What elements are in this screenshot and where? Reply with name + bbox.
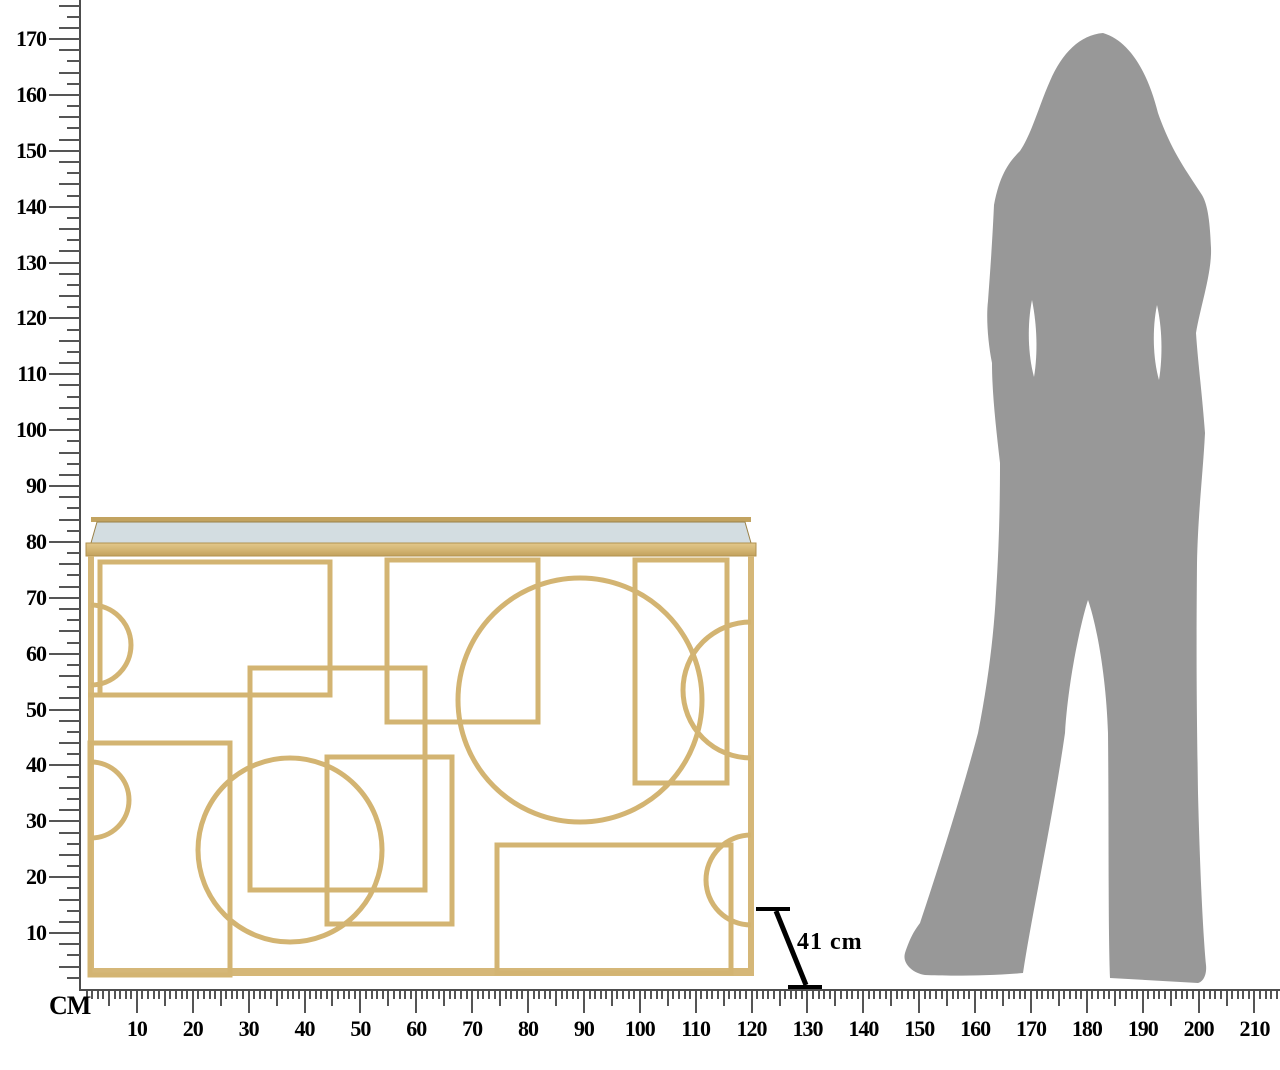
ruler-tick xyxy=(97,991,99,999)
ruler-tick xyxy=(248,991,250,1013)
ruler-tick xyxy=(1063,991,1065,999)
ruler-tick xyxy=(67,977,80,979)
ruler-unit-label: CM xyxy=(49,991,90,1021)
ruler-label: 40 xyxy=(277,1017,333,1041)
ruler-tick xyxy=(846,991,848,999)
ruler-tick xyxy=(946,991,948,1006)
ruler-tick xyxy=(449,991,451,999)
ruler-tick xyxy=(125,991,127,999)
ruler-tick xyxy=(711,991,713,999)
ruler-tick xyxy=(169,991,171,999)
ruler-tick xyxy=(812,991,814,999)
ruler-tick xyxy=(49,206,80,208)
silhouette-shape xyxy=(904,33,1211,983)
ruler-tick xyxy=(214,991,216,999)
ruler-tick xyxy=(918,991,920,1013)
ruler-tick xyxy=(59,295,80,297)
ruler-tick xyxy=(67,440,80,442)
ruler-tick xyxy=(1019,991,1021,999)
ruler-tick xyxy=(67,731,80,733)
ruler-tick xyxy=(1114,991,1116,1006)
ruler-label: 10 xyxy=(109,1017,165,1041)
ruler-tick xyxy=(885,991,887,999)
ruler-tick xyxy=(67,552,80,554)
ruler-tick xyxy=(236,991,238,999)
ruler-tick xyxy=(371,991,373,999)
ruler-label: 60 xyxy=(0,643,46,665)
ruler-tick xyxy=(901,991,903,999)
ruler-tick xyxy=(91,991,93,999)
ruler-tick xyxy=(197,991,199,999)
ruler-tick xyxy=(477,991,479,999)
ruler-tick xyxy=(59,340,80,342)
ruler-tick xyxy=(890,991,892,1006)
ruler-tick xyxy=(1270,991,1272,999)
ruler-tick xyxy=(1136,991,1138,999)
ruler-tick xyxy=(67,843,80,845)
ruler-tick xyxy=(225,991,227,999)
ruler-tick xyxy=(818,991,820,999)
ruler-label: 140 xyxy=(835,1017,891,1041)
ruler-tick xyxy=(67,105,80,107)
ruler-tick xyxy=(980,991,982,999)
ruler-tick xyxy=(1242,991,1244,999)
ruler-tick xyxy=(59,139,80,141)
ruler-tick xyxy=(231,991,233,999)
ruler-tick xyxy=(331,991,333,1006)
ruler-label: 150 xyxy=(891,1017,947,1041)
ruler-tick xyxy=(1203,991,1205,999)
ruler-tick xyxy=(661,991,663,999)
ruler-tick xyxy=(695,991,697,1013)
ruler-tick xyxy=(49,764,80,766)
ruler-label: 30 xyxy=(0,810,46,832)
ruler-tick xyxy=(393,991,395,999)
ruler-tick xyxy=(1147,991,1149,999)
ruler-tick xyxy=(59,27,80,29)
ruler-tick xyxy=(164,991,166,1006)
ruler-tick xyxy=(119,991,121,999)
ruler-tick xyxy=(583,991,585,1013)
ruler-tick xyxy=(404,991,406,999)
ruler-tick xyxy=(49,150,80,152)
ruler-tick xyxy=(1002,991,1004,1006)
ruler-tick xyxy=(1237,991,1239,999)
ruler-tick xyxy=(790,991,792,999)
tabletop xyxy=(86,517,756,556)
ruler-tick xyxy=(59,49,80,51)
ruler-tick xyxy=(996,991,998,999)
ruler-tick xyxy=(1036,991,1038,999)
ruler-tick xyxy=(538,991,540,999)
ruler-tick xyxy=(762,991,764,999)
ruler-label: 170 xyxy=(1003,1017,1059,1041)
ruler-tick xyxy=(1119,991,1121,999)
ruler-tick xyxy=(59,563,80,565)
ruler-tick xyxy=(1024,991,1026,999)
ruler-tick xyxy=(270,991,272,999)
ruler-tick xyxy=(298,991,300,999)
ruler-tick xyxy=(868,991,870,999)
ruler-label: 10 xyxy=(0,922,46,944)
ruler-tick xyxy=(315,991,317,999)
ruler-tick xyxy=(67,798,80,800)
ruler-tick xyxy=(639,991,641,1013)
ruler-tick xyxy=(59,161,80,163)
ruler-tick xyxy=(628,991,630,999)
ruler-tick xyxy=(49,541,80,543)
ruler-tick xyxy=(549,991,551,999)
ruler-tick xyxy=(59,608,80,610)
ruler-tick xyxy=(67,530,80,532)
ruler-tick xyxy=(59,452,80,454)
ruler-tick xyxy=(566,991,568,999)
ruler-tick xyxy=(304,991,306,1013)
ruler-tick xyxy=(1069,991,1071,999)
ruler-tick xyxy=(991,991,993,999)
ruler-tick xyxy=(343,991,345,999)
ruler-tick xyxy=(354,991,356,999)
ruler-tick xyxy=(717,991,719,999)
ruler-tick xyxy=(49,317,80,319)
ruler-label: 200 xyxy=(1171,1017,1227,1041)
vertical-ruler-line xyxy=(79,0,81,990)
ruler-tick xyxy=(572,991,574,999)
ruler-tick xyxy=(706,991,708,999)
ruler-tick xyxy=(510,991,512,999)
ruler-label: 50 xyxy=(0,699,46,721)
ruler-tick xyxy=(924,991,926,999)
ruler-tick xyxy=(1276,991,1278,999)
ruler-tick xyxy=(67,686,80,688)
ruler-tick xyxy=(466,991,468,999)
ruler-tick xyxy=(67,418,80,420)
ruler-tick xyxy=(1181,991,1183,999)
ruler-tick xyxy=(359,991,361,1013)
ruler-tick xyxy=(102,991,104,999)
ruler-tick xyxy=(49,597,80,599)
large-circle xyxy=(458,578,702,822)
ruler-tick xyxy=(957,991,959,999)
ruler-tick xyxy=(1220,991,1222,999)
ruler-tick xyxy=(862,991,864,1013)
ruler-tick xyxy=(49,653,80,655)
ruler-tick xyxy=(67,60,80,62)
ruler-tick xyxy=(281,991,283,999)
ruler-tick xyxy=(320,991,322,999)
ruler-tick xyxy=(59,742,80,744)
ruler-tick xyxy=(253,991,255,999)
ruler-tick xyxy=(175,991,177,999)
ruler-tick xyxy=(974,991,976,1013)
ruler-tick xyxy=(220,991,222,1006)
ruler-label: 80 xyxy=(500,1017,556,1041)
ruler-tick xyxy=(1164,991,1166,999)
ruler-label: 20 xyxy=(0,866,46,888)
ruler-tick xyxy=(739,991,741,999)
ruler-tick xyxy=(633,991,635,999)
ruler-tick xyxy=(114,991,116,999)
ruler-tick xyxy=(460,991,462,999)
ruler-label: 70 xyxy=(0,587,46,609)
ruler-tick xyxy=(1080,991,1082,999)
ruler-tick xyxy=(505,991,507,999)
ruler-tick xyxy=(1209,991,1211,999)
ruler-tick xyxy=(1030,991,1032,1013)
ruler-tick xyxy=(67,351,80,353)
ruler-tick xyxy=(59,5,80,7)
ruler-tick xyxy=(67,127,80,129)
ruler-tick xyxy=(59,966,80,968)
ruler-tick xyxy=(59,407,80,409)
ruler-label: 90 xyxy=(0,475,46,497)
ruler-tick xyxy=(309,991,311,999)
ruler-tick xyxy=(67,306,80,308)
ruler-tick xyxy=(896,991,898,999)
ruler-tick xyxy=(823,991,825,999)
ruler-tick xyxy=(857,991,859,999)
ruler-tick xyxy=(482,991,484,999)
ruler-tick xyxy=(600,991,602,999)
mirror-top xyxy=(91,522,751,543)
ruler-tick xyxy=(784,991,786,999)
ruler-tick xyxy=(49,485,80,487)
ruler-tick xyxy=(1108,991,1110,999)
ruler-tick xyxy=(521,991,523,999)
ruler-tick xyxy=(1142,991,1144,1013)
ruler-tick xyxy=(67,195,80,197)
small-circle xyxy=(198,758,382,942)
ruler-tick xyxy=(67,396,80,398)
ruler-tick xyxy=(1226,991,1228,1006)
ruler-tick xyxy=(49,932,80,934)
ruler-tick xyxy=(59,921,80,923)
ruler-tick xyxy=(1091,991,1093,999)
ruler-tick xyxy=(734,991,736,999)
ruler-tick xyxy=(1259,991,1261,999)
ruler-label: 80 xyxy=(0,531,46,553)
ruler-tick xyxy=(67,83,80,85)
ruler-tick xyxy=(879,991,881,999)
ruler-tick xyxy=(49,262,80,264)
ruler-tick xyxy=(438,991,440,999)
ruler-tick xyxy=(728,991,730,999)
ruler-tick xyxy=(59,362,80,364)
ruler-tick xyxy=(929,991,931,999)
ruler-tick xyxy=(672,991,674,999)
ruler-tick xyxy=(1248,991,1250,999)
ruler-tick xyxy=(181,991,183,999)
ruler-tick xyxy=(59,183,80,185)
ruler-label: 40 xyxy=(0,754,46,776)
ruler-tick xyxy=(840,991,842,999)
ruler-tick xyxy=(1265,991,1267,999)
ruler-tick xyxy=(59,854,80,856)
ruler-tick xyxy=(773,991,775,999)
ruler-tick xyxy=(907,991,909,999)
ruler-tick xyxy=(59,809,80,811)
geometric-frame xyxy=(88,560,751,975)
ruler-tick xyxy=(337,991,339,999)
ruler-label: 180 xyxy=(1059,1017,1115,1041)
ruler-tick xyxy=(723,991,725,1006)
ruler-tick xyxy=(1231,991,1233,999)
ruler-tick xyxy=(471,991,473,1013)
ruler-tick xyxy=(67,619,80,621)
ruler-label: 140 xyxy=(0,196,46,218)
ruler-tick xyxy=(67,239,80,241)
ruler-tick xyxy=(67,507,80,509)
ruler-tick xyxy=(136,991,138,1013)
ruler-tick xyxy=(700,991,702,999)
ruler-tick xyxy=(59,630,80,632)
ruler-tick xyxy=(1175,991,1177,999)
ruler-tick xyxy=(292,991,294,999)
ruler-tick xyxy=(59,943,80,945)
ruler-tick xyxy=(242,991,244,999)
ruler-tick xyxy=(577,991,579,999)
ruler-tick xyxy=(1058,991,1060,1006)
ruler-tick xyxy=(1041,991,1043,999)
dimension-diagram: 1020304050607080901001101201301401501601… xyxy=(0,0,1280,1070)
ruler-tick xyxy=(67,642,80,644)
ruler-label: 110 xyxy=(0,363,46,385)
ruler-tick xyxy=(1198,991,1200,1013)
ruler-tick xyxy=(1131,991,1133,999)
ruler-tick xyxy=(935,991,937,999)
ruler-tick xyxy=(365,991,367,999)
ruler-tick xyxy=(644,991,646,999)
ruler-tick xyxy=(203,991,205,999)
ruler-tick xyxy=(454,991,456,999)
ruler-tick xyxy=(108,991,110,1006)
ruler-tick xyxy=(1097,991,1099,999)
ruler-label: 120 xyxy=(0,307,46,329)
ruler-label: 210 xyxy=(1226,1017,1280,1041)
ruler-label: 70 xyxy=(444,1017,500,1041)
ruler-tick xyxy=(1192,991,1194,999)
ruler-tick xyxy=(153,991,155,999)
ruler-tick xyxy=(59,675,80,677)
ruler-label: 50 xyxy=(332,1017,388,1041)
ruler-tick xyxy=(745,991,747,999)
ruler-tick xyxy=(67,887,80,889)
ruler-label: 130 xyxy=(0,252,46,274)
ruler-tick xyxy=(1052,991,1054,999)
ruler-tick xyxy=(130,991,132,999)
ruler-tick xyxy=(684,991,686,999)
ruler-tick xyxy=(382,991,384,999)
ruler-label: 30 xyxy=(221,1017,277,1041)
ruler-tick xyxy=(399,991,401,999)
ruler-tick xyxy=(67,284,80,286)
ruler-tick xyxy=(756,991,758,999)
ruler-tick xyxy=(141,991,143,999)
ruler-tick xyxy=(67,329,80,331)
ruler-tick xyxy=(1253,991,1255,1013)
ruler-tick xyxy=(1008,991,1010,999)
ruler-label: 170 xyxy=(0,28,46,50)
ruler-tick xyxy=(59,72,80,74)
ruler-tick xyxy=(415,991,417,1013)
ruler-label: 110 xyxy=(668,1017,724,1041)
ruler-tick xyxy=(67,172,80,174)
ruler-tick xyxy=(952,991,954,999)
ruler-tick xyxy=(555,991,557,1006)
ruler-label: 160 xyxy=(947,1017,1003,1041)
ruler-tick xyxy=(410,991,412,999)
ruler-tick xyxy=(158,991,160,999)
ruler-tick xyxy=(1086,991,1088,1013)
ruler-tick xyxy=(1125,991,1127,999)
ruler-tick xyxy=(968,991,970,999)
ruler-label: 100 xyxy=(612,1017,668,1041)
ruler-tick xyxy=(544,991,546,999)
ruler-tick xyxy=(59,496,80,498)
ruler-tick xyxy=(1047,991,1049,999)
ruler-label: 20 xyxy=(165,1017,221,1041)
ruler-tick xyxy=(611,991,613,1006)
ruler-tick xyxy=(192,991,194,1013)
ruler-tick xyxy=(1013,991,1015,999)
ruler-tick xyxy=(985,991,987,999)
ruler-tick xyxy=(806,991,808,1013)
ruler-tick xyxy=(49,820,80,822)
ruler-tick xyxy=(589,991,591,999)
ruler-tick xyxy=(851,991,853,999)
ruler-tick xyxy=(499,991,501,1006)
ruler-tick xyxy=(59,899,80,901)
ruler-tick xyxy=(1075,991,1077,999)
ruler-tick xyxy=(59,720,80,722)
ruler-label: 190 xyxy=(1115,1017,1171,1041)
ruler-tick xyxy=(147,991,149,999)
ruler-tick xyxy=(59,832,80,834)
dimension-value-label: 41 cm xyxy=(797,929,863,956)
ruler-tick xyxy=(963,991,965,999)
ruler-tick xyxy=(1186,991,1188,999)
ruler-tick xyxy=(533,991,535,999)
ruler-tick xyxy=(67,16,80,18)
ruler-tick xyxy=(67,865,80,867)
ruler-tick xyxy=(605,991,607,999)
ruler-label: 90 xyxy=(556,1017,612,1041)
ruler-tick xyxy=(834,991,836,1006)
ruler-tick xyxy=(516,991,518,999)
ruler-label: 130 xyxy=(779,1017,835,1041)
ruler-tick xyxy=(264,991,266,999)
ruler-tick xyxy=(767,991,769,999)
ruler-tick xyxy=(287,991,289,999)
ruler-tick xyxy=(326,991,328,999)
ruler-tick xyxy=(1103,991,1105,999)
ruler-tick xyxy=(1214,991,1216,999)
ruler-tick xyxy=(59,474,80,476)
ruler-tick xyxy=(209,991,211,999)
ruler-tick xyxy=(59,384,80,386)
ruler-tick xyxy=(49,876,80,878)
ruler-tick xyxy=(59,116,80,118)
ruler-tick xyxy=(59,228,80,230)
ruler-tick xyxy=(829,991,831,999)
ruler-label: 120 xyxy=(724,1017,780,1041)
ruler-tick xyxy=(59,586,80,588)
ruler-tick xyxy=(873,991,875,999)
ruler-tick xyxy=(667,991,669,1006)
ruler-tick xyxy=(67,463,80,465)
ruler-tick xyxy=(426,991,428,999)
ruler-tick xyxy=(49,709,80,711)
